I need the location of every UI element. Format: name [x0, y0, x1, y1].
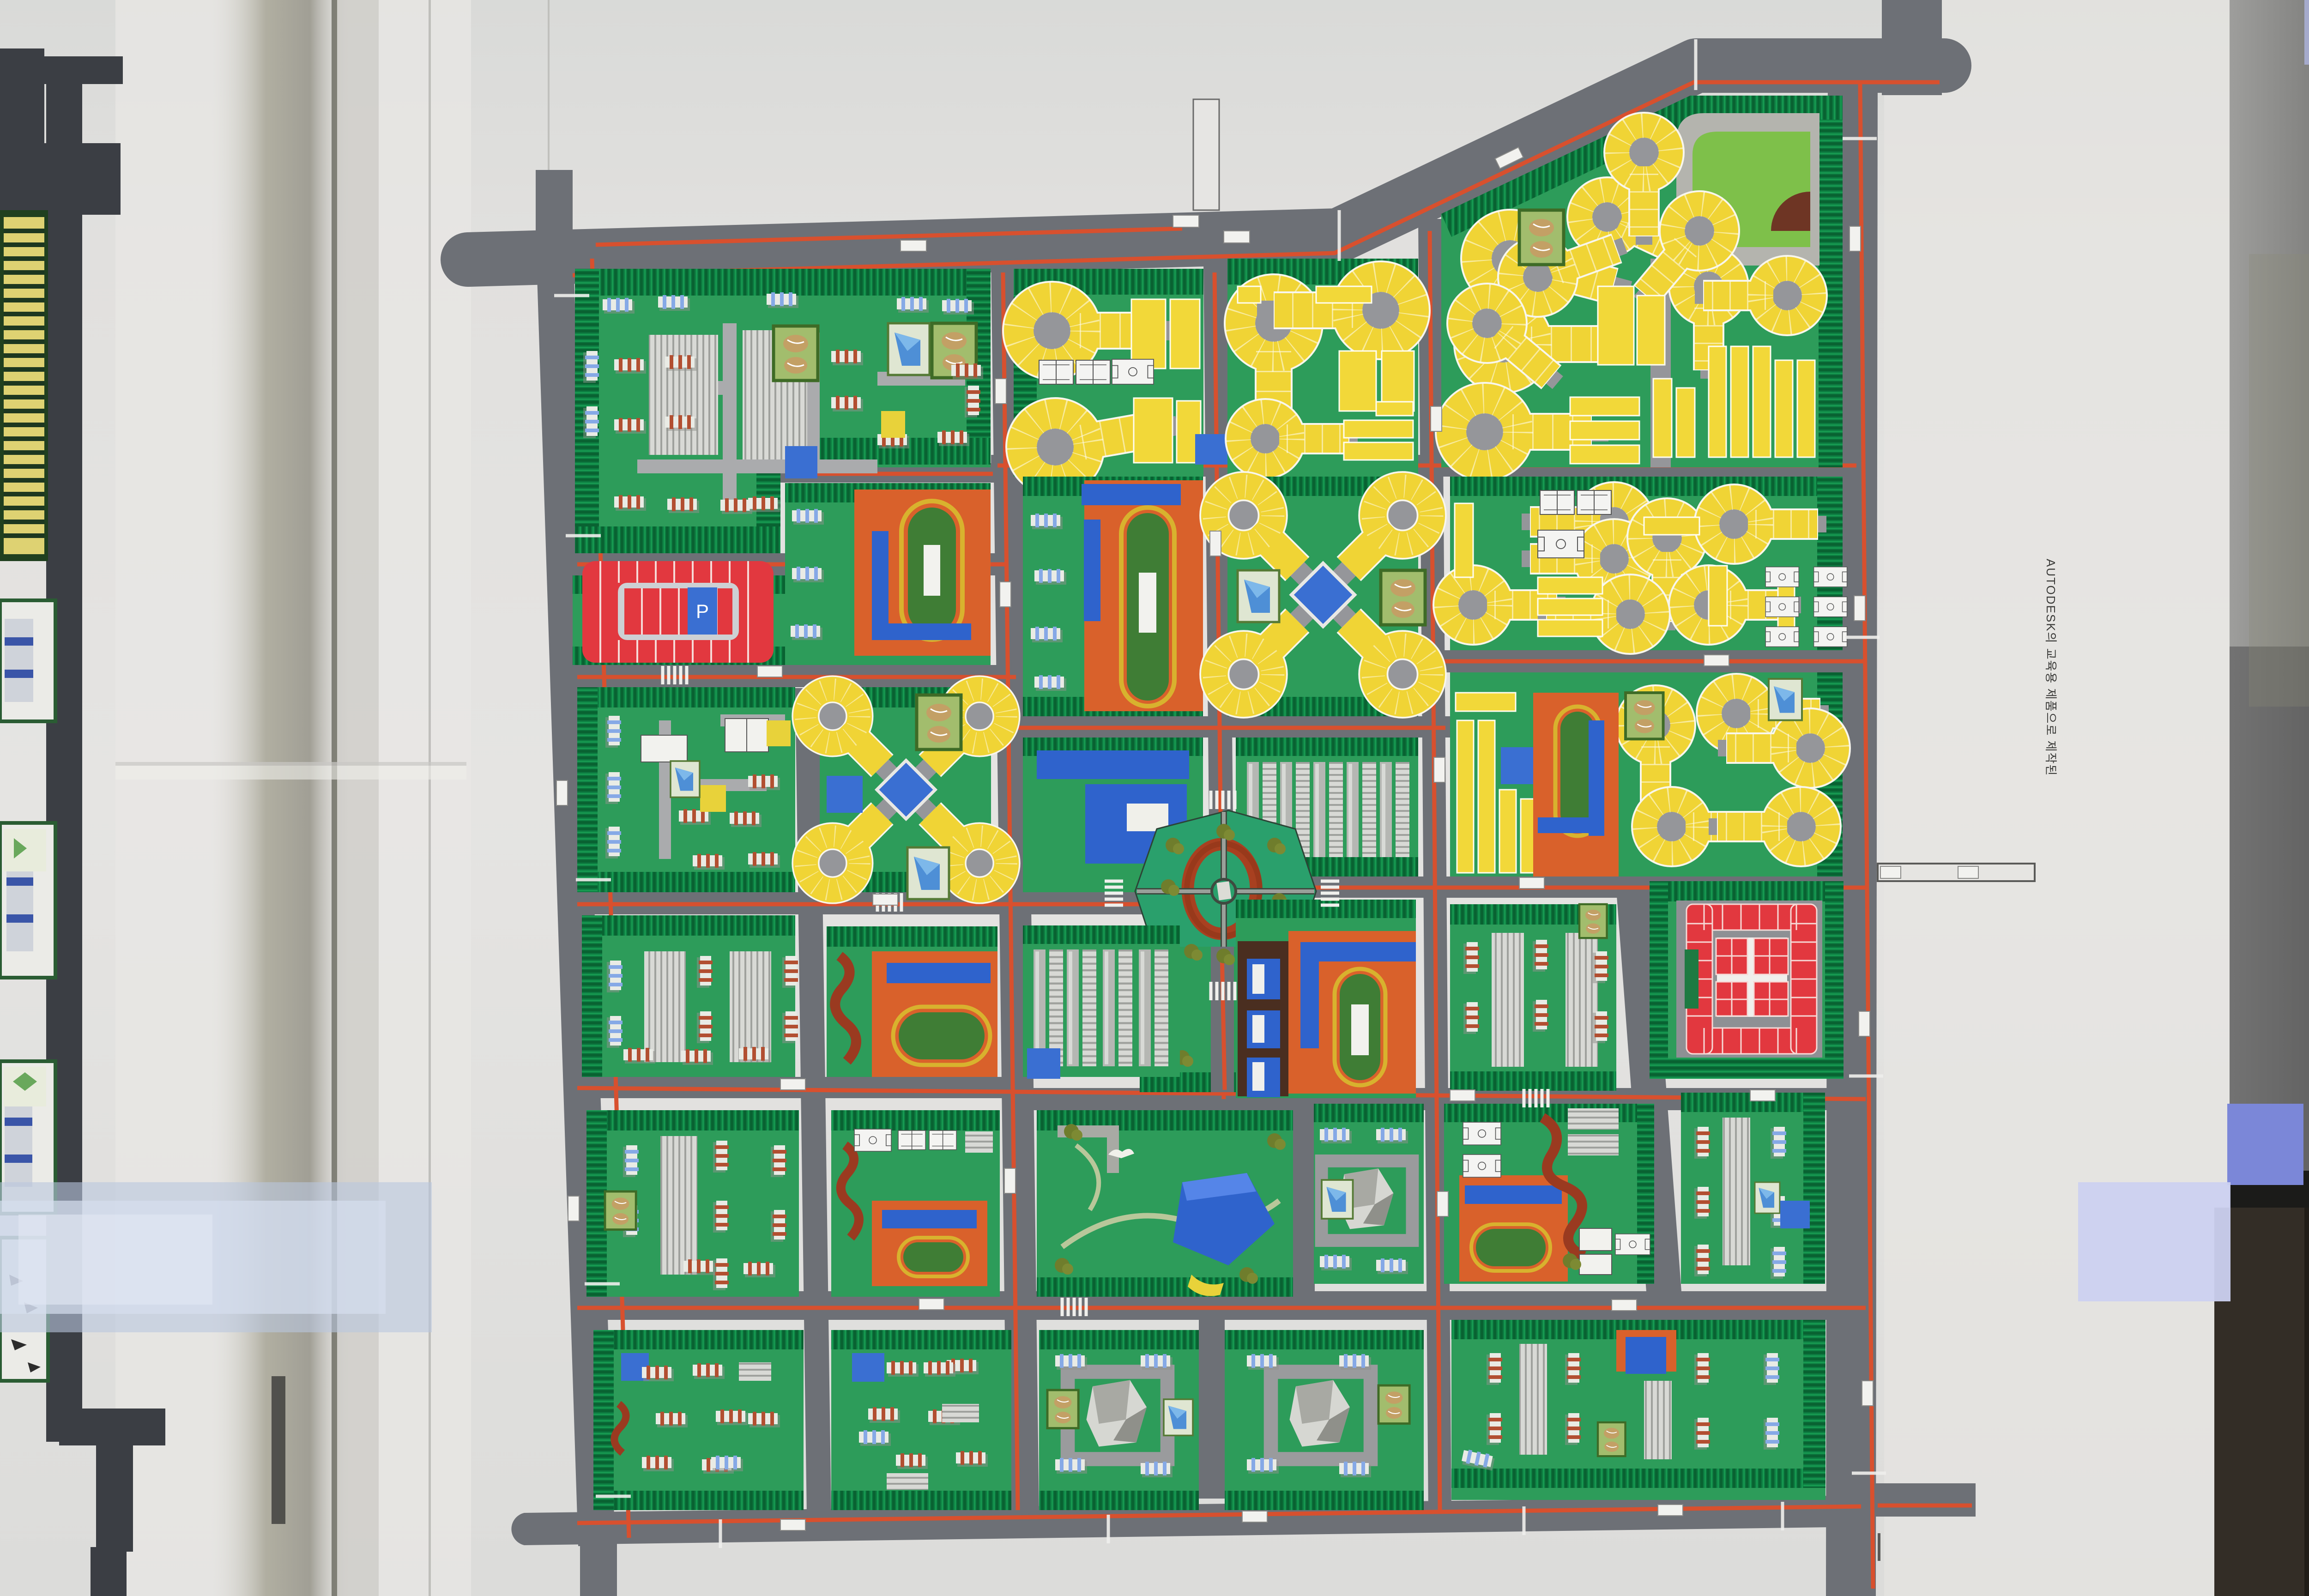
svg-text:AUTODESK의 교육용 제품으로 제작된: AUTODESK의 교육용 제품으로 제작된	[2044, 559, 2058, 776]
svg-text:P: P	[696, 600, 709, 622]
